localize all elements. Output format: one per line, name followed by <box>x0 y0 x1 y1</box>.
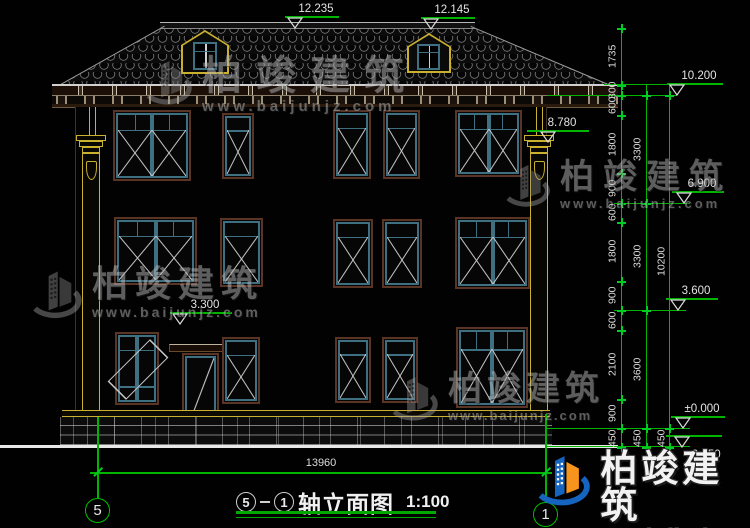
window-narrow <box>383 110 420 179</box>
window-narrow <box>335 337 371 403</box>
stone-base <box>60 417 552 445</box>
dim-value: 900 <box>606 399 619 428</box>
dormer-window <box>417 44 440 70</box>
elevation-value: 3.300 <box>176 299 234 311</box>
dim-value: 450 <box>631 426 644 450</box>
dim-value: 1800 <box>606 222 619 281</box>
title-underline-thick <box>236 511 436 514</box>
elevation-value: 6.900 <box>678 178 726 190</box>
dim-value: 3600 <box>631 310 644 428</box>
dim-chain-line-2 <box>646 84 647 447</box>
elevation-triangle-icon <box>670 299 686 311</box>
dim-value: 3300 <box>631 203 644 310</box>
title-dash <box>260 501 270 503</box>
dim-value: 900 <box>606 173 619 203</box>
elevation-value: 3.600 <box>672 285 720 297</box>
elevation-triangle-icon <box>674 436 690 448</box>
eave-cornice <box>52 84 618 107</box>
elevation-triangle-icon <box>287 17 303 29</box>
elevation-drawing-canvas: 5 1 13960 5 1 轴立面图 1:100 173530060018009… <box>0 0 750 528</box>
window-narrow <box>220 218 263 287</box>
elevation-triangle-icon <box>423 18 439 30</box>
dim-value: 900 <box>606 281 619 310</box>
window-wide <box>455 217 530 289</box>
ground-line <box>0 445 618 448</box>
dentil-row <box>52 96 618 104</box>
dim-value: 2100 <box>606 330 619 399</box>
window-wide <box>114 217 197 285</box>
elevation-value: ±0.000 <box>677 403 727 415</box>
title-underline-thin <box>236 517 436 518</box>
window-diamond <box>115 332 159 405</box>
elevation-value: -0.450 <box>688 449 721 461</box>
dim-value: 1800 <box>606 115 619 173</box>
dim-value: 1735 <box>606 28 619 85</box>
axis-bubble-right: 1 <box>533 502 558 527</box>
elevation-triangle-icon <box>676 192 692 204</box>
window-narrow <box>222 337 260 404</box>
dim-chain-line-3 <box>669 84 670 447</box>
dim-value: 600 <box>606 95 619 115</box>
window-narrow <box>333 110 371 179</box>
dormer-window <box>193 42 217 70</box>
dim-value: 3300 <box>631 95 644 203</box>
window-wide <box>113 110 191 181</box>
dim-value: 10200 <box>655 95 668 428</box>
total-width-dimension-line <box>90 472 552 474</box>
window-narrow <box>333 219 373 288</box>
dim-value: 600 <box>606 203 619 222</box>
base-belt <box>62 410 550 417</box>
axis-bubble-left: 5 <box>85 498 110 523</box>
elevation-triangle-icon <box>172 313 188 325</box>
elevation-triangle-icon <box>669 84 685 96</box>
window-wide <box>456 327 528 408</box>
elevation-triangle-icon <box>675 417 691 429</box>
watermark-brand: 柏竣建筑 <box>600 450 750 524</box>
elevation-value: 12.235 <box>291 3 341 15</box>
axis-line-left <box>97 417 99 498</box>
title-axis-start: 5 <box>236 492 256 512</box>
dim-value: 450 <box>655 426 668 450</box>
elevation-value: 8.780 <box>533 117 591 129</box>
elevation-value: 10.200 <box>673 70 725 82</box>
title-axis-end: 1 <box>274 492 294 512</box>
dim-value: 450 <box>606 426 619 450</box>
window-wide <box>455 110 522 177</box>
window-narrow <box>382 337 418 403</box>
title-scale: 1:100 <box>406 492 449 512</box>
dim-value: 300 <box>606 85 619 95</box>
total-width-dimension: 13960 <box>288 457 354 469</box>
dim-value: 600 <box>606 310 619 330</box>
elevation-value: 12.145 <box>427 4 477 16</box>
window-narrow <box>222 113 254 179</box>
brand-watermark: 柏竣建筑 www.baijunjz.com <box>531 450 750 528</box>
window-narrow <box>382 219 422 288</box>
elevation-triangle-icon <box>540 131 556 143</box>
